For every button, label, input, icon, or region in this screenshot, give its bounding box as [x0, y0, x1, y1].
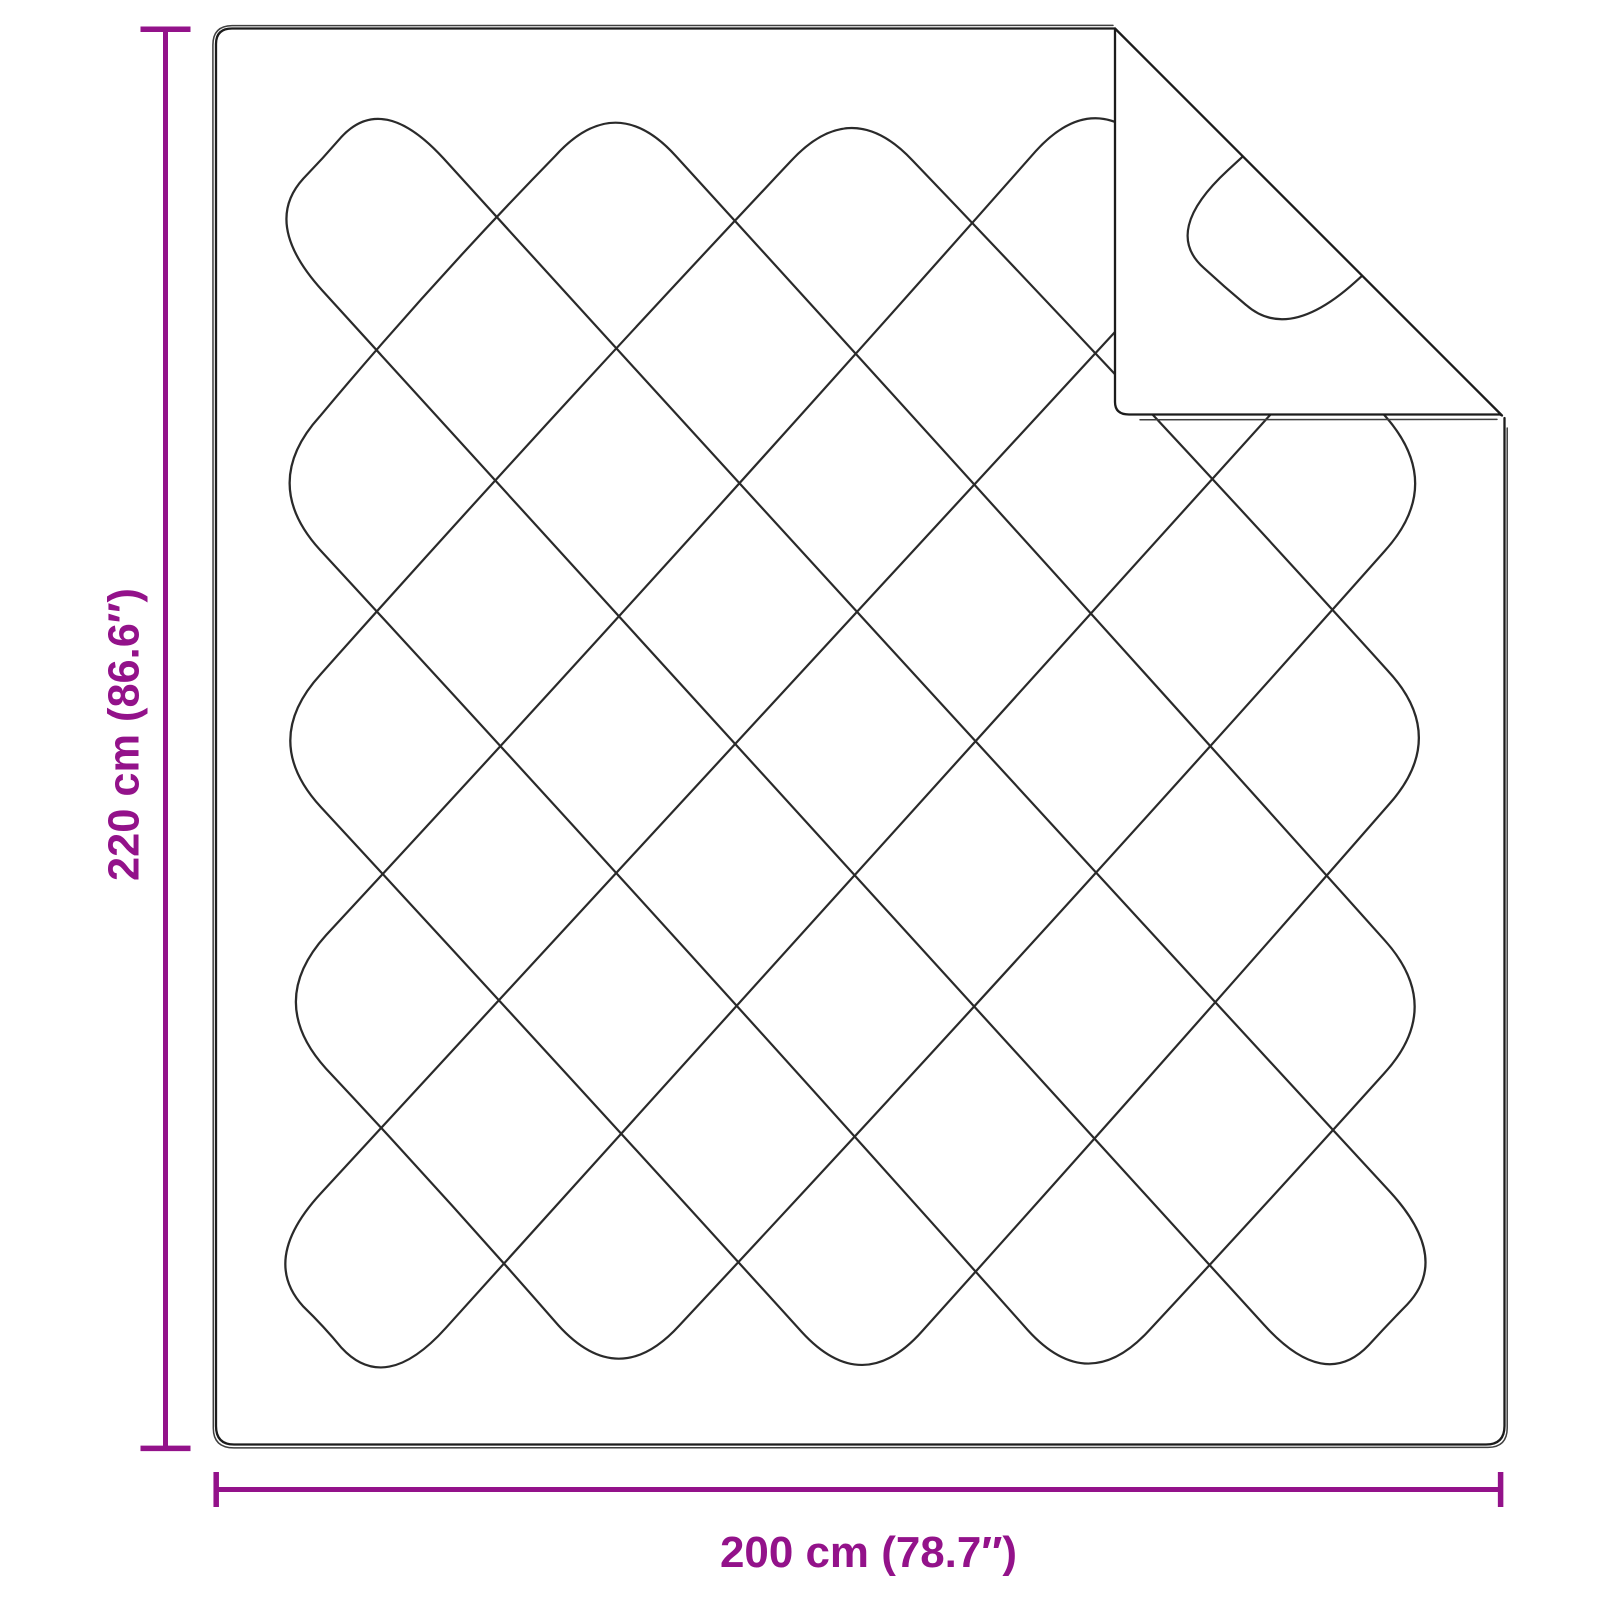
svg-text:200 cm (78.7″): 200 cm (78.7″) [720, 1528, 1017, 1577]
svg-text:220 cm (86.6″): 220 cm (86.6″) [100, 588, 149, 881]
